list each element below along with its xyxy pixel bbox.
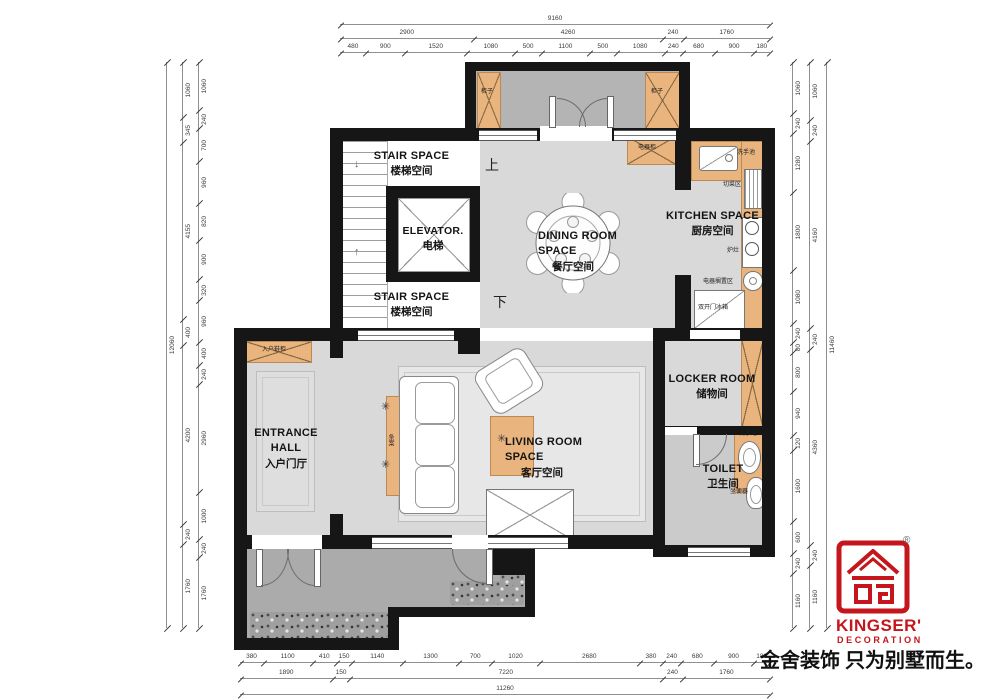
dim-value: 480	[347, 42, 358, 52]
dim-value: 7220	[499, 668, 513, 678]
stove-burner-bottom-icon	[745, 242, 759, 256]
dim-value: 12060	[168, 336, 178, 354]
room-label-zh: 餐厅空间	[538, 260, 630, 275]
dim-chain-left-detail: 1060240700960820900320960400240296010002…	[198, 62, 210, 628]
dim-value: 180	[756, 42, 767, 52]
porch-door-leaf	[549, 96, 556, 128]
dim-segment: 1060	[810, 62, 821, 121]
dim-segment: 500	[515, 42, 541, 52]
dim-segment: 1800	[793, 193, 804, 271]
dim-segment: 1100	[541, 42, 589, 52]
dim-value: 960	[200, 177, 210, 188]
dim-segment: 1600	[793, 451, 804, 522]
wall	[762, 328, 775, 557]
dim-segment: 680	[681, 652, 714, 662]
kitchen-faucet-icon	[725, 154, 733, 162]
dim-segment: 820	[199, 203, 210, 240]
dim-segment: 700	[199, 129, 210, 162]
wall	[525, 548, 535, 611]
wall	[234, 328, 343, 341]
dim-value: 1160	[794, 594, 804, 608]
wall	[675, 128, 691, 190]
entrance-door-opening	[252, 535, 322, 549]
room-label-en: KITCHEN SPACE	[660, 209, 765, 224]
dim-value: 1600	[794, 479, 804, 493]
dim-value: 1800	[794, 225, 804, 239]
dim-chain-right-groups: 1060240416024043602401160	[809, 62, 821, 628]
dim-value: 2900	[399, 28, 413, 38]
plant-icon: ✳	[381, 458, 390, 471]
dim-value: 240	[794, 558, 804, 569]
room-label-zh: 厨房空间	[660, 224, 765, 239]
room-label-en: LOCKER ROOM	[657, 372, 767, 387]
sofa-cushion	[415, 382, 455, 424]
dim-segment: 700	[459, 652, 492, 662]
dim-segment: 380	[240, 652, 263, 662]
dim-segment: 240	[663, 28, 684, 38]
dim-value: 4155	[184, 224, 194, 238]
dim-segment: 1160	[793, 573, 804, 628]
wall	[465, 62, 476, 132]
dim-value: 9160	[548, 14, 562, 24]
sofa	[399, 376, 459, 514]
dim-segment: 410	[312, 652, 336, 662]
dim-segment: 680	[683, 42, 715, 52]
entrance-door-leaf	[314, 549, 321, 587]
dim-value: 1060	[811, 84, 821, 98]
dim-value: 600	[794, 532, 804, 543]
dim-value: 380	[246, 652, 257, 662]
dim-value: 240	[200, 114, 210, 125]
dim-value: 1140	[370, 652, 384, 662]
dim-segment: 1890	[240, 668, 333, 678]
dim-value: 1520	[428, 42, 442, 52]
dim-segment: 800	[793, 353, 804, 392]
dim-segment: 4260	[473, 28, 662, 38]
small-appliance-dot	[749, 277, 757, 285]
kingser-logo-icon	[836, 540, 910, 614]
dim-value: 410	[319, 652, 330, 662]
dim-segment: 240	[664, 42, 682, 52]
dim-value: 11460	[828, 336, 838, 354]
dim-segment: 900	[715, 42, 754, 52]
dim-segment: 1000	[199, 493, 210, 539]
dim-segment: 7220	[350, 668, 663, 678]
dim-value: 1160	[811, 590, 821, 604]
dim-value: 940	[794, 408, 804, 419]
room-label-stair-bottom: STAIR SPACE 楼梯空间	[343, 290, 480, 320]
dim-value: 400	[200, 348, 210, 359]
dim-segment: 240	[662, 668, 683, 678]
dim-segment: 380	[639, 652, 662, 662]
wall	[234, 548, 247, 650]
shoe-cabinet	[246, 341, 312, 363]
dim-value: 1080	[794, 290, 804, 304]
room-label-en: STAIR SPACE	[343, 290, 480, 305]
dim-value: 320	[200, 285, 210, 296]
dim-segment: 150	[336, 652, 352, 662]
living-window-right	[488, 537, 568, 549]
dim-segment: 900	[714, 652, 754, 662]
brand-name: KINGSER'	[836, 616, 922, 636]
dim-segment: 900	[199, 240, 210, 279]
dim-value: 240	[668, 42, 679, 52]
dim-segment: 1160	[810, 566, 821, 628]
wall	[465, 62, 690, 71]
dim-segment: 960	[199, 301, 210, 342]
room-label-elevator: ELEVATOR. 电梯	[388, 224, 478, 253]
wall	[679, 62, 690, 132]
dim-segment: 1020	[492, 652, 539, 662]
dim-segment: 1100	[263, 652, 312, 662]
dim-chain-left-total: 12060	[166, 62, 178, 628]
porch-window-left	[479, 130, 537, 141]
room-label-kitchen: KITCHEN SPACE 厨房空间	[660, 209, 765, 239]
dim-value: 1080	[633, 42, 647, 52]
sofa-cushion	[415, 424, 455, 466]
locker-door-opening	[690, 330, 740, 339]
dim-chain-left-groups: 1060345415540042002401760	[182, 62, 194, 628]
dim-value: 1060	[200, 79, 210, 93]
dim-segment: 1760	[183, 545, 194, 628]
dim-segment: 4360	[810, 349, 821, 545]
dim-value: 240	[811, 125, 821, 136]
dim-value: 900	[729, 42, 740, 52]
armchair-seat	[483, 356, 535, 406]
terrace-door-leaf	[486, 549, 493, 585]
wall	[388, 607, 535, 617]
wall	[330, 341, 343, 358]
dim-chain-top-groups: 290042602401760	[340, 28, 770, 39]
plant-icon: ✳	[381, 400, 390, 413]
dim-segment: 1060	[199, 62, 210, 110]
dim-value: 1020	[508, 652, 522, 662]
dim-segment: 1520	[405, 42, 467, 52]
brand-tagline: 金舍装饰 只为别墅而生。	[760, 644, 998, 673]
terrace-door-opening	[452, 535, 488, 549]
wall	[653, 328, 665, 557]
room-label-zh: 储物间	[657, 387, 767, 402]
wall	[234, 638, 399, 650]
fridge	[694, 290, 745, 329]
living-window-left	[372, 537, 452, 549]
room-label-en: TOILET	[688, 462, 758, 477]
cutting-board	[744, 169, 762, 209]
dim-value: 900	[728, 652, 739, 662]
dim-value: 150	[336, 668, 347, 678]
dim-segment: 1140	[352, 652, 403, 662]
wall	[330, 128, 343, 341]
dim-value: 1060	[794, 81, 804, 95]
dim-value: 1760	[719, 668, 733, 678]
dim-value: 240	[811, 550, 821, 561]
dim-segment: 180	[754, 42, 770, 52]
dim-segment: 9160	[340, 14, 770, 24]
dim-chain-bottom-total: 11260	[240, 684, 770, 695]
dim-value: 11260	[496, 684, 514, 694]
room-label-en: LIVING ROOM SPACE	[505, 435, 605, 466]
room-label-toilet: TOILET 卫生间	[688, 462, 758, 492]
wall	[458, 328, 480, 354]
dim-value: 1080	[484, 42, 498, 52]
dim-segment: 11260	[240, 684, 770, 694]
floor-plan-canvas: ↓ ↑ ✳ ✳ ✳	[0, 0, 1000, 700]
dim-segment: 940	[793, 392, 804, 436]
room-label-stair-top: STAIR SPACE 楼梯空间	[343, 149, 480, 179]
room-label-en: STAIR SPACE	[343, 149, 480, 164]
dim-segment: 900	[366, 42, 405, 52]
dim-value: 1060	[184, 83, 194, 97]
dim-value: 240	[668, 28, 679, 38]
porch-door-opening	[540, 126, 612, 141]
porch-cabinet-right	[645, 72, 680, 129]
dim-value: 700	[470, 652, 481, 662]
stair-up-marker: 上	[485, 155, 499, 175]
dim-value: 240	[811, 334, 821, 345]
dim-value: 1760	[719, 28, 733, 38]
dim-value: 1890	[279, 668, 293, 678]
dim-segment: 345	[183, 118, 194, 142]
dim-segment: 500	[590, 42, 616, 52]
room-label-living: LIVING ROOM SPACE 客厅空间	[505, 435, 605, 480]
porch-window-right	[614, 130, 676, 141]
dim-value: 4160	[811, 228, 821, 242]
dim-value: 240	[666, 652, 677, 662]
dim-value: 1300	[423, 652, 437, 662]
dim-segment: 1080	[467, 42, 515, 52]
dim-value: 1100	[558, 42, 572, 52]
dim-value: 900	[200, 254, 210, 265]
room-label-en: ELEVATOR.	[388, 224, 478, 239]
dim-value: 800	[794, 367, 804, 378]
dim-chain-bottom-detail: 3801100410150114013007001020268038024068…	[240, 652, 770, 663]
dim-value: 240	[667, 668, 678, 678]
sofa-cushion	[415, 466, 455, 508]
stair-down-marker: 下	[493, 292, 507, 312]
dim-value: 1760	[200, 586, 210, 600]
dim-value: 1000	[200, 509, 210, 523]
dim-value: 1280	[794, 156, 804, 170]
dim-value: 4200	[184, 428, 194, 442]
porch-cabinet-left	[477, 72, 501, 129]
dim-chain-top-total: 9160	[340, 14, 770, 25]
stair-living-opening	[358, 330, 454, 341]
dim-value: 240	[794, 118, 804, 129]
dim-value: 680	[693, 42, 704, 52]
dim-segment: 960	[199, 162, 210, 203]
dim-value: 4360	[811, 440, 821, 454]
room-label-zh: 卫生间	[688, 477, 758, 492]
tv-cabinet	[486, 489, 574, 541]
dim-value: 400	[184, 327, 194, 338]
dim-segment: 12060	[167, 62, 178, 628]
dim-value: 380	[645, 652, 656, 662]
room-label-zh: 入户门厅	[240, 457, 332, 472]
room-label-zh: 电梯	[388, 239, 478, 254]
dim-value: 345	[184, 125, 194, 136]
dim-segment: 240	[662, 652, 681, 662]
room-label-en: ENTRANCE HALL	[240, 426, 332, 457]
dim-value: 240	[794, 328, 804, 339]
dim-segment: 1760	[199, 558, 210, 628]
room-label-zh: 楼梯空间	[343, 305, 480, 320]
room-label-entrance: ENTRANCE HALL 入户门厅	[240, 426, 332, 471]
dim-value: 820	[200, 216, 210, 227]
dim-segment: 1300	[402, 652, 458, 662]
dim-segment: 1760	[683, 668, 770, 678]
dim-segment: 1060	[183, 62, 194, 118]
room-label-zh: 客厅空间	[505, 466, 605, 481]
room-label-dining: DINING ROOM SPACE 餐厅空间	[538, 229, 630, 274]
toilet-window	[688, 547, 750, 557]
dim-value: 240	[184, 529, 194, 540]
dim-value: 1760	[184, 579, 194, 593]
dim-segment: 480	[340, 42, 366, 52]
dim-segment: 2960	[199, 384, 210, 493]
dim-value: 500	[597, 42, 608, 52]
dim-segment: 1060	[793, 62, 804, 114]
dim-segment: 2900	[340, 28, 473, 38]
dim-segment: 4200	[183, 346, 194, 525]
dim-value: 500	[523, 42, 534, 52]
dim-value: 4260	[561, 28, 575, 38]
dim-segment: 4155	[183, 142, 194, 319]
dim-segment: 1280	[793, 133, 804, 193]
dim-segment: 4160	[810, 141, 821, 328]
dim-segment: 2680	[539, 652, 639, 662]
dim-value: 960	[200, 316, 210, 327]
dim-chain-right-detail: 1060240128018001080240808009401201600600…	[792, 62, 804, 628]
dim-segment: 1760	[683, 28, 770, 38]
dim-value: 2960	[200, 431, 210, 445]
dim-value: 2680	[582, 652, 596, 662]
dim-value: 700	[200, 140, 210, 151]
stair-arrow-up-icon: ↑	[354, 246, 360, 258]
dim-chain-bottom-groups: 189015072202401760	[240, 668, 770, 679]
dim-value: 150	[339, 652, 350, 662]
dim-value: 240	[200, 543, 210, 554]
dim-value: 680	[692, 652, 703, 662]
dim-segment: 1080	[616, 42, 664, 52]
dim-value: 900	[380, 42, 391, 52]
dim-segment: 150	[333, 668, 350, 678]
dim-chain-top-detail: 4809001520108050011005001080240680900180	[340, 42, 770, 53]
room-label-zh: 楼梯空间	[343, 164, 480, 179]
terrace-pebbles-bottom	[250, 612, 388, 638]
dim-value: 240	[200, 369, 210, 380]
dim-value: 1100	[281, 652, 295, 662]
dim-segment: 600	[793, 522, 804, 554]
room-label-en: DINING ROOM SPACE	[538, 229, 630, 260]
porch-door-leaf	[607, 96, 614, 128]
registered-mark: ®	[903, 535, 910, 546]
room-label-locker: LOCKER ROOM 储物间	[657, 372, 767, 402]
dim-segment: 1080	[793, 271, 804, 324]
